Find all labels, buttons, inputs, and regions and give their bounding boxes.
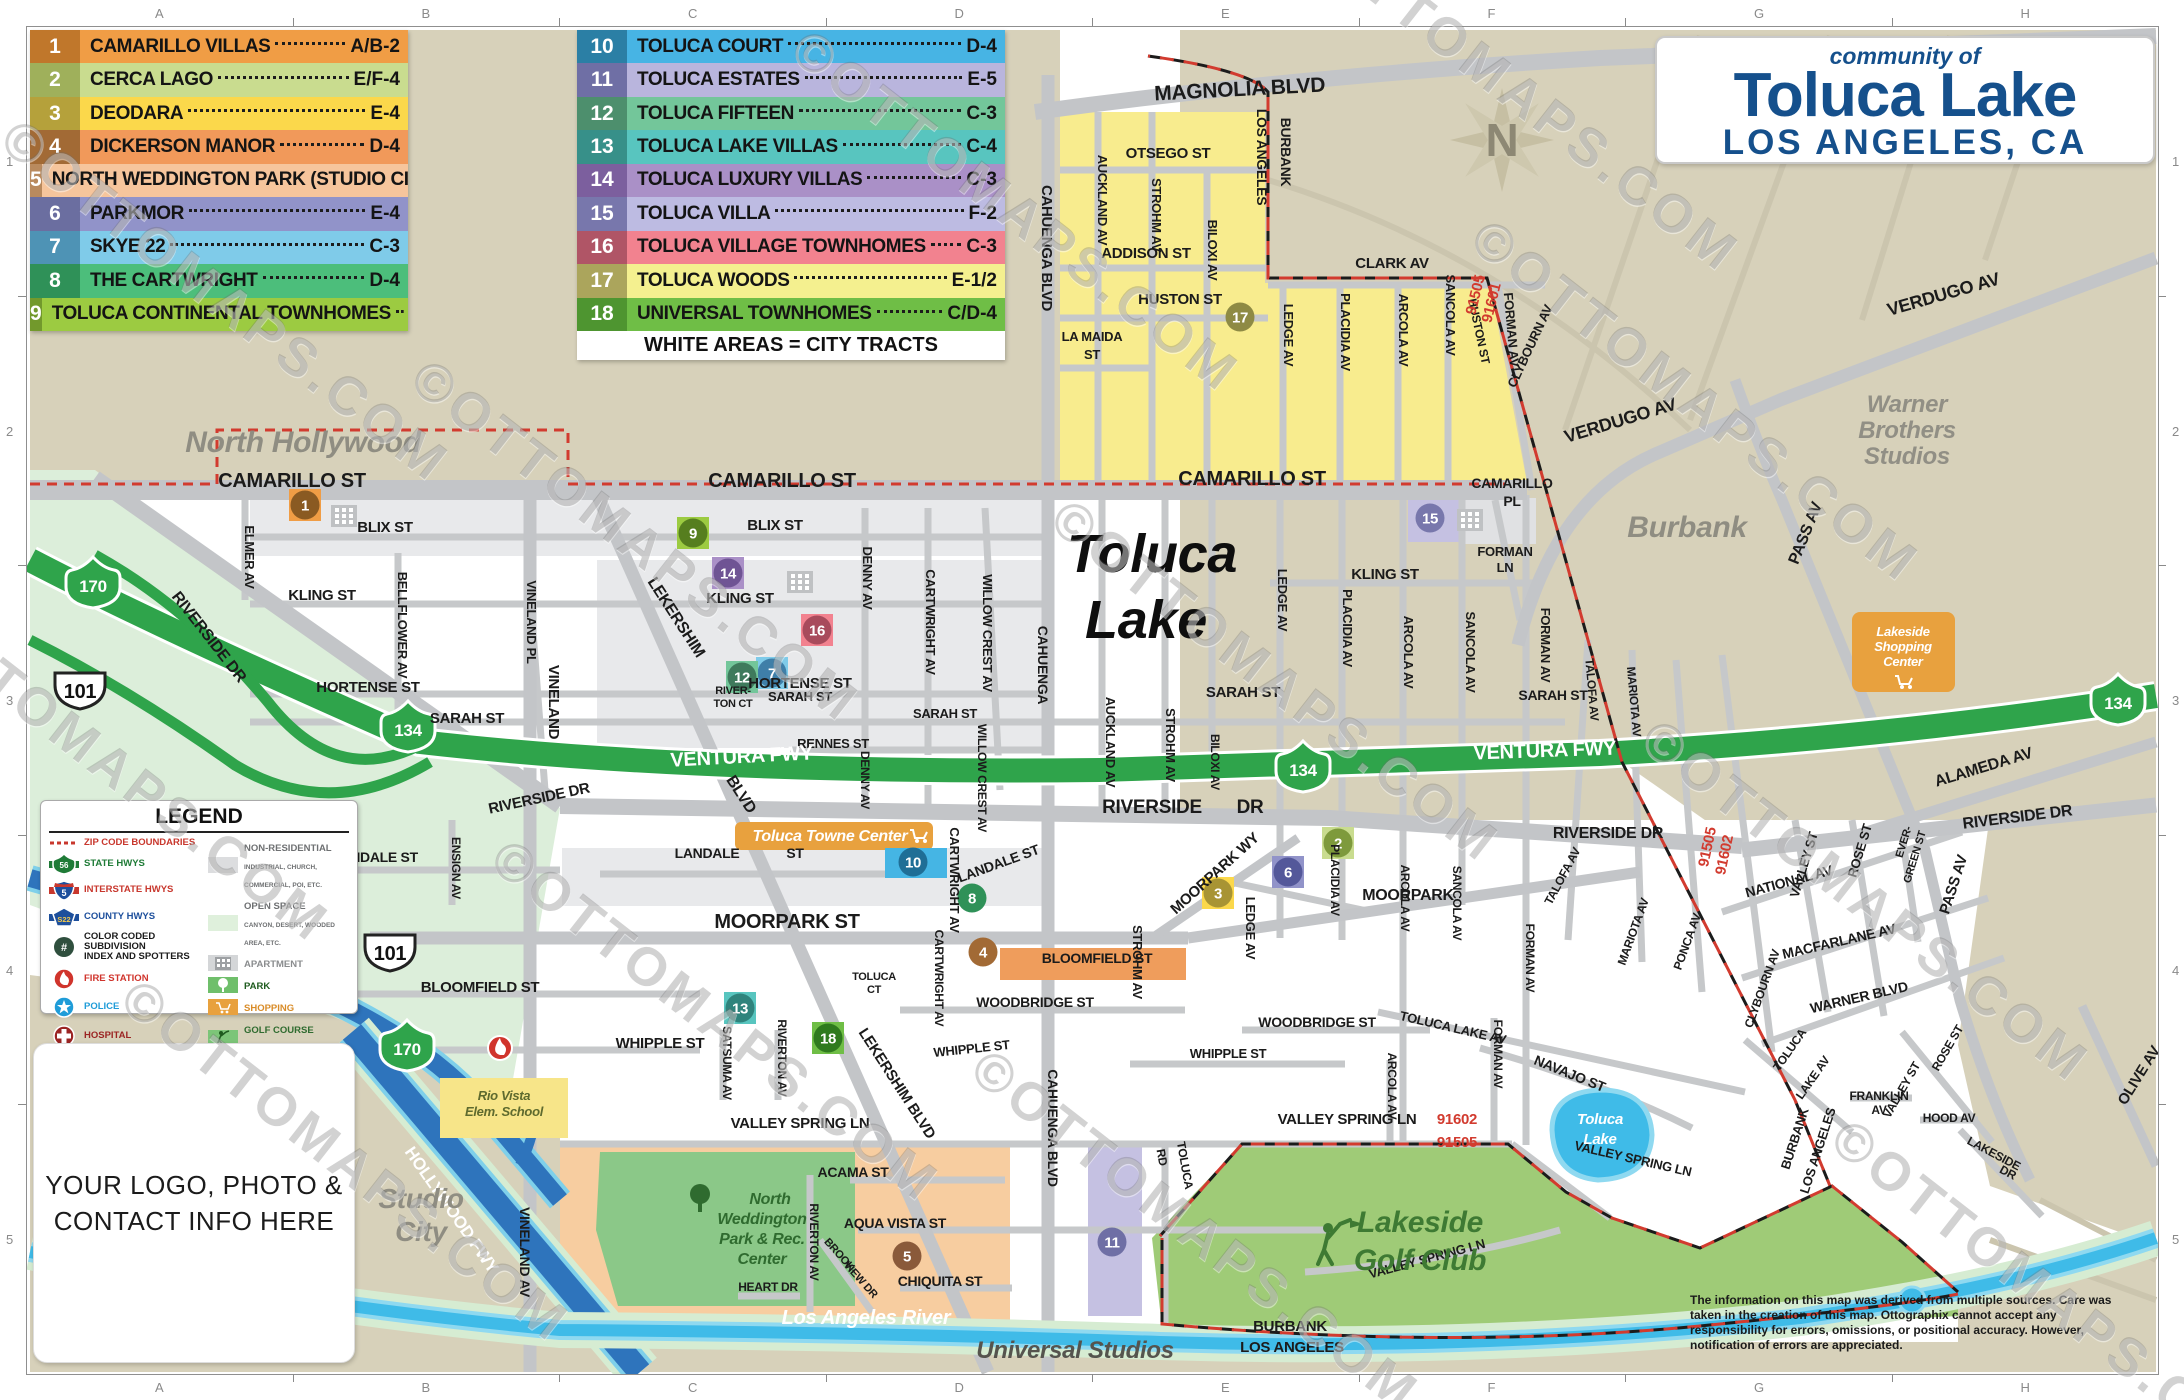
index-dot-leader bbox=[189, 209, 365, 212]
legend-item-label: INTERSTATE HWYS bbox=[84, 885, 173, 895]
subdivision-index-left: 1CAMARILLO VILLASA/B-22CERCA LAGOE/F-43D… bbox=[30, 30, 408, 331]
index-dot-leader bbox=[218, 76, 349, 79]
area-label: Lakeside bbox=[1357, 1206, 1483, 1239]
index-row-4: 4DICKERSON MANORD-4 bbox=[30, 130, 408, 163]
index-row-15: 15TOLUCA VILLAF-2 bbox=[577, 197, 1005, 230]
spotter-number: 3 bbox=[1214, 886, 1222, 903]
street-label: FORMAN AV bbox=[1538, 608, 1553, 683]
ruler-tick bbox=[1892, 18, 1893, 26]
index-subdivision-name: TOLUCA VILLA bbox=[627, 203, 770, 225]
street-label: ACAMA ST bbox=[818, 1164, 890, 1180]
street-label: FORMAN AV bbox=[1523, 924, 1537, 993]
ruler-letter-D: D bbox=[955, 1380, 964, 1395]
street-label: CARTWRIGHT AV bbox=[932, 930, 946, 1027]
area-label: Universal Studios bbox=[976, 1337, 1174, 1364]
street-label: PLACIDIA AV bbox=[1328, 844, 1342, 916]
ruler-letter-G: G bbox=[1754, 1380, 1764, 1395]
street-label: WOODBRIDGE ST bbox=[1258, 1014, 1376, 1030]
street-label: AUCKLAND AV bbox=[1103, 697, 1118, 788]
map-poster: N101101170170134134134123456789101112131… bbox=[0, 0, 2184, 1400]
ruler-tick bbox=[559, 1374, 560, 1382]
spotter-number: 16 bbox=[809, 623, 825, 640]
county-hwy-icon: S22 bbox=[49, 906, 79, 928]
ruler-number-1: 1 bbox=[6, 154, 13, 169]
index-grid-ref: A/B-2 bbox=[350, 36, 408, 58]
street-label: KLING ST bbox=[706, 590, 774, 607]
street-label: CAHUENGA BLVD bbox=[1045, 1069, 1061, 1187]
street-label: AQUA VISTA ST bbox=[844, 1215, 947, 1231]
index-number: 6 bbox=[30, 197, 80, 230]
shield-number: 134 bbox=[394, 721, 422, 740]
disclaimer-text: The information on this map was derived … bbox=[1690, 1293, 2126, 1353]
swatch-icon bbox=[208, 915, 238, 931]
ruler-tick bbox=[1359, 1374, 1360, 1382]
area-label: City bbox=[395, 1216, 448, 1247]
street-label: FORMAN bbox=[1477, 544, 1532, 559]
area-label: Studio bbox=[378, 1183, 463, 1214]
index-number: 12 bbox=[577, 97, 627, 130]
street-label: PLACIDIA AV bbox=[1340, 589, 1355, 667]
index-number: 18 bbox=[577, 298, 627, 331]
spotter-number: 18 bbox=[820, 1031, 836, 1048]
street-label: SANCOLA AV bbox=[1443, 274, 1458, 356]
index-grid-ref: C-3 bbox=[369, 236, 408, 258]
street-label: CHIQUITA ST bbox=[898, 1273, 983, 1289]
street-label: RIVERSIDE DR bbox=[1553, 825, 1664, 842]
index-dot-leader bbox=[280, 143, 364, 146]
index-dot-leader bbox=[170, 243, 364, 246]
legend-area-label: APARTMENT bbox=[244, 959, 303, 970]
legend-area-sub: CANYON, DESERT, WOODED AREA, ETC. bbox=[244, 922, 335, 947]
compass-n-label: N bbox=[1486, 114, 1519, 166]
legend-area-label: GOLF COURSE bbox=[244, 1025, 314, 1036]
index-grid-ref: D-4 bbox=[966, 36, 1005, 58]
street-label: MOORPARK ST bbox=[714, 911, 859, 933]
street-label: LN bbox=[1497, 560, 1514, 575]
street-label: LANDALE bbox=[675, 845, 740, 861]
street-label: PL bbox=[1503, 493, 1521, 509]
area-label: Shopping bbox=[1874, 639, 1932, 654]
index-row-14: 14TOLUCA LUXURY VILLASC-3 bbox=[577, 164, 1005, 197]
area-label: Toluca bbox=[1577, 1111, 1623, 1128]
ruler-letter-F: F bbox=[1488, 1380, 1496, 1395]
tree-icon bbox=[208, 977, 238, 993]
ruler-tick bbox=[293, 18, 294, 26]
index-number: 16 bbox=[577, 231, 627, 264]
index-subdivision-name: PARKMOR bbox=[80, 203, 184, 225]
street-label: SARAH ST bbox=[913, 706, 977, 721]
index-row-8: 8THE CARTWRIGHTD-4 bbox=[30, 264, 408, 297]
index-dot-leader bbox=[931, 243, 962, 246]
logo-line1: YOUR LOGO, PHOTO & bbox=[45, 1170, 342, 1200]
street-label: DR bbox=[1237, 797, 1264, 818]
index-grid-ref: E-4 bbox=[370, 103, 408, 125]
street-label: DENNY AV bbox=[860, 546, 875, 610]
street-label: CAMARILLO ST bbox=[1178, 468, 1326, 490]
street-label: ADDISON ST bbox=[1101, 245, 1191, 262]
index-number: 7 bbox=[30, 231, 80, 264]
index-row-9: 9TOLUCA CONTINENTAL TOWNHOMESC-2 bbox=[30, 298, 408, 331]
area-label: North Hollywood bbox=[185, 426, 421, 459]
street-label: SANCOLA AV bbox=[1450, 866, 1464, 941]
legend-item-police: POLICE bbox=[49, 995, 208, 1019]
index-grid-ref: D-4 bbox=[369, 270, 408, 292]
spotter-icon: # bbox=[49, 935, 79, 959]
spotter-number: 14 bbox=[720, 566, 737, 583]
index-number: 9 bbox=[30, 298, 42, 331]
legend-item-label: COLOR CODED SUBDIVISION INDEX AND SPOTTE… bbox=[84, 932, 208, 962]
spotter-number: 10 bbox=[905, 855, 921, 872]
apartment-icon bbox=[787, 571, 813, 593]
street-label: WILLOW CREST AV bbox=[975, 724, 989, 832]
street-label: CAHUENGA bbox=[1035, 626, 1051, 705]
street-label: ST bbox=[786, 845, 804, 861]
ruler-letter-A: A bbox=[155, 1380, 164, 1395]
swatch-icon bbox=[208, 857, 238, 873]
index-subdivision-name: TOLUCA COURT bbox=[627, 36, 783, 58]
legend-area-non-residential: NON-RESIDENTIALINDUSTRIAL, CHURCH, COMME… bbox=[208, 838, 349, 892]
logo-line2: CONTACT INFO HERE bbox=[54, 1206, 335, 1236]
spotter-number: 4 bbox=[979, 945, 988, 962]
area-label: Weddington bbox=[717, 1211, 807, 1228]
index-row-5: 5NORTH WEDDINGTON PARK (STUDIO CITY)D-5 bbox=[30, 164, 408, 197]
legend-box: LEGEND ZIP CODE BOUNDARIES56STATE HWYS5I… bbox=[40, 800, 358, 1014]
index-dot-leader bbox=[843, 143, 962, 146]
logo-placeholder-box: YOUR LOGO, PHOTO & CONTACT INFO HERE bbox=[33, 1043, 355, 1363]
index-row-16: 16TOLUCA VILLAGE TOWNHOMESC-3 bbox=[577, 231, 1005, 264]
street-label: RIVERTON AV bbox=[807, 1203, 821, 1280]
index-dot-leader bbox=[788, 42, 961, 45]
index-row-3: 3DEODARAE-4 bbox=[30, 97, 408, 130]
street-label: TOLUCA bbox=[852, 971, 896, 983]
area-label: Park & Rec. bbox=[719, 1231, 805, 1248]
street-label: HORTENSE ST bbox=[316, 679, 420, 696]
legend-area-label: SHOPPING bbox=[244, 1003, 294, 1014]
street-label: VINELAND AV bbox=[517, 1207, 533, 1298]
subdivision-index-right: 10TOLUCA COURTD-411TOLUCA ESTATESE-512TO… bbox=[577, 30, 1005, 360]
street-label: LA MAIDA bbox=[1062, 329, 1124, 344]
index-number: 14 bbox=[577, 164, 627, 197]
street-label: CLARK AV bbox=[1355, 255, 1429, 272]
index-subdivision-name: CERCA LAGO bbox=[80, 69, 213, 91]
index-subdivision-name: TOLUCA LAKE VILLAS bbox=[627, 136, 838, 158]
street-label: BLOOMFIELD ST bbox=[1042, 950, 1153, 966]
street-label: BILOXI AV bbox=[1205, 220, 1220, 281]
spotter-number: 6 bbox=[1284, 865, 1292, 882]
street-label: LEDGE AV bbox=[1243, 897, 1258, 960]
street-label: LEDGE AV bbox=[1275, 569, 1290, 632]
index-subdivision-name: TOLUCA FIFTEEN bbox=[627, 103, 794, 125]
ruler-number-5: 5 bbox=[2172, 1232, 2179, 1247]
legend-area-sub: INDUSTRIAL, CHURCH, COMMERCIAL, POI, ETC… bbox=[244, 864, 322, 889]
street-label: BLIX ST bbox=[357, 519, 413, 536]
area-label: Golf Club bbox=[1354, 1244, 1486, 1277]
ruler-tick bbox=[826, 1374, 827, 1382]
street-label: CAMARILLO ST bbox=[218, 470, 366, 492]
ruler-tick bbox=[1625, 1374, 1626, 1382]
ruler-tick bbox=[2158, 835, 2166, 836]
legend-item-zip: ZIP CODE BOUNDARIES bbox=[49, 838, 208, 848]
index-dot-leader bbox=[275, 42, 345, 45]
index-row-2: 2CERCA LAGOE/F-4 bbox=[30, 63, 408, 96]
index-grid-ref: C/D-4 bbox=[947, 303, 1005, 325]
index-subdivision-name: TOLUCA CONTINENTAL TOWNHOMES bbox=[42, 303, 391, 325]
street-label: ARCOLA AV bbox=[1396, 294, 1411, 367]
index-subdivision-name: DICKERSON MANOR bbox=[80, 136, 275, 158]
street-label: OTSEGO ST bbox=[1126, 145, 1211, 162]
ruler-tick bbox=[1892, 1374, 1893, 1382]
apartment-icon bbox=[1457, 509, 1483, 531]
ruler-letter-E: E bbox=[1221, 1380, 1230, 1395]
street-label: LEDGE AV bbox=[1281, 304, 1296, 367]
zip-code-label: 91602 bbox=[1437, 1111, 1477, 1128]
street-label: SARAH ST bbox=[1206, 684, 1280, 701]
street-label: STROHM AV bbox=[1163, 708, 1178, 782]
spotter-number: 11 bbox=[1104, 1235, 1119, 1252]
ruler-number-1: 1 bbox=[2172, 154, 2179, 169]
ruler-right bbox=[2158, 0, 2184, 1400]
index-grid-ref: F-2 bbox=[969, 203, 1006, 225]
svg-text:56: 56 bbox=[60, 861, 69, 870]
street-label: HEART DR bbox=[738, 1280, 798, 1294]
ruler-letter-H: H bbox=[2021, 1380, 2030, 1395]
index-dot-leader bbox=[775, 209, 963, 212]
spotter-number: 17 bbox=[1232, 310, 1248, 327]
ruler-number-5: 5 bbox=[6, 1232, 13, 1247]
index-grid-ref: D-4 bbox=[369, 136, 408, 158]
index-number: 1 bbox=[30, 30, 80, 63]
ruler-letter-C: C bbox=[688, 6, 697, 21]
area-label: Toluca bbox=[1067, 524, 1237, 584]
area-label: Lake bbox=[1584, 1131, 1617, 1148]
state-hwy-icon: 56 bbox=[49, 853, 79, 875]
index-dot-leader bbox=[188, 109, 365, 112]
ruler-tick bbox=[1359, 18, 1360, 26]
index-grid-ref: E-1/2 bbox=[952, 270, 1005, 292]
area-label: Warner bbox=[1867, 391, 1949, 418]
ruler-letter-A: A bbox=[155, 6, 164, 21]
fire-icon bbox=[49, 967, 79, 991]
ruler-letter-G: G bbox=[1754, 6, 1764, 21]
apartment-icon bbox=[331, 505, 357, 527]
index-grid-ref: C-3 bbox=[966, 236, 1005, 258]
ruler-tick bbox=[1092, 18, 1093, 26]
ruler-tick bbox=[2158, 1104, 2166, 1105]
ruler-number-3: 3 bbox=[2172, 693, 2179, 708]
index-number: 3 bbox=[30, 97, 80, 130]
index-subdivision-name: TOLUCA WOODS bbox=[627, 270, 789, 292]
index-grid-ref: C-3 bbox=[966, 169, 1005, 191]
legend-area-shopping: SHOPPING bbox=[208, 998, 349, 1016]
area-label: Elem. School bbox=[465, 1104, 544, 1119]
index-subdivision-name: UNIVERSAL TOWNHOMES bbox=[627, 303, 872, 325]
index-number: 4 bbox=[30, 130, 80, 163]
index-row-12: 12TOLUCA FIFTEENC-3 bbox=[577, 97, 1005, 130]
street-label: DENNY AV bbox=[858, 751, 872, 809]
spotter-number: 5 bbox=[903, 1249, 911, 1266]
legend-item-state-hwy: 56STATE HWYS bbox=[49, 853, 208, 875]
legend-item-label: POLICE bbox=[84, 1002, 119, 1012]
zip-icon bbox=[49, 838, 79, 848]
interstate-hwy-icon: 5 bbox=[49, 879, 79, 901]
shield-number: 101 bbox=[64, 681, 97, 703]
spotter-number: 8 bbox=[968, 891, 976, 908]
index-number: 5 bbox=[30, 164, 42, 197]
legend-item-fire: FIRE STATION bbox=[49, 967, 208, 991]
index-subdivision-name: THE CARTWRIGHT bbox=[80, 270, 258, 292]
legend-item-label: STATE HWYS bbox=[84, 859, 145, 869]
index-dot-leader bbox=[805, 76, 963, 79]
legend-item-label: COUNTY HWYS bbox=[84, 912, 155, 922]
index-row-17: 17TOLUCA WOODSE-1/2 bbox=[577, 264, 1005, 297]
shield-number: 170 bbox=[393, 1040, 420, 1059]
street-label: BILOXI AV bbox=[1208, 734, 1222, 790]
svg-text:5: 5 bbox=[61, 888, 66, 898]
legend-item-label: ZIP CODE BOUNDARIES bbox=[84, 838, 195, 848]
index-number: 2 bbox=[30, 63, 80, 96]
street-label: BELLFLOWER AV bbox=[395, 572, 410, 679]
spotter-number: 15 bbox=[1422, 511, 1438, 528]
index-number: 10 bbox=[577, 30, 627, 63]
title-subtitle: LOS ANGELES, CA bbox=[1657, 124, 2153, 162]
index-row-10: 10TOLUCA COURTD-4 bbox=[577, 30, 1005, 63]
area-label: Studios bbox=[1864, 443, 1950, 470]
street-label: CT bbox=[867, 984, 882, 996]
index-grid-ref: E/F-4 bbox=[354, 69, 408, 91]
area-label: Rio Vista bbox=[478, 1088, 531, 1103]
shield-number: 134 bbox=[2104, 694, 2132, 713]
legend-area-label: PARK bbox=[244, 981, 270, 992]
index-dot-leader bbox=[794, 276, 946, 279]
street-label: STROHM AV bbox=[1149, 178, 1164, 252]
legend-area-park: PARK bbox=[208, 976, 349, 994]
index-dot-leader bbox=[263, 276, 365, 279]
street-label: AUCKLAND AV bbox=[1095, 155, 1110, 246]
index-dot-leader bbox=[396, 310, 404, 313]
street-label: CARTWRIGHT AV bbox=[923, 569, 938, 675]
area-label: Center bbox=[738, 1251, 788, 1268]
svg-text:S22: S22 bbox=[57, 915, 70, 924]
index-grid-ref: E-4 bbox=[370, 203, 408, 225]
street-label: ELMER AV bbox=[242, 525, 257, 589]
street-label: RIVERSIDE bbox=[1102, 797, 1202, 818]
index-note: WHITE AREAS = CITY TRACTS bbox=[577, 331, 1005, 360]
street-label: ST bbox=[1084, 347, 1100, 362]
street-label: RIVERTON AV bbox=[775, 1019, 789, 1096]
area-label: Brothers bbox=[1858, 417, 1956, 444]
street-label: ENSIGN AV bbox=[449, 837, 463, 899]
spotter-number: 9 bbox=[689, 526, 697, 543]
street-label: CARTWRIGHT AV bbox=[947, 827, 962, 933]
area-label: Lakeside bbox=[1876, 624, 1929, 639]
ruler-tick bbox=[293, 1374, 294, 1382]
ruler-letter-B: B bbox=[422, 1380, 431, 1395]
index-row-18: 18UNIVERSAL TOWNHOMESC/D-4 bbox=[577, 298, 1005, 331]
street-label: SATSUMA AV bbox=[720, 1026, 734, 1100]
index-number: 17 bbox=[577, 264, 627, 297]
street-label: PLACIDIA AV bbox=[1338, 293, 1353, 371]
street-label: HOOD AV bbox=[1923, 1111, 1976, 1125]
ruler-tick bbox=[1625, 18, 1626, 26]
index-grid-ref: C-3 bbox=[966, 103, 1005, 125]
area-label: Burbank bbox=[1627, 511, 1748, 544]
ruler-tick bbox=[18, 565, 26, 566]
street-label: VINELAND bbox=[545, 665, 562, 740]
area-label: North bbox=[749, 1191, 791, 1208]
index-subdivision-name: TOLUCA ESTATES bbox=[627, 69, 800, 91]
street-label: BLIX ST bbox=[747, 517, 803, 534]
area-label: Center bbox=[1883, 654, 1924, 669]
index-dot-leader bbox=[877, 310, 943, 313]
street-label: VALLEY SPRING LN bbox=[731, 1115, 870, 1132]
index-grid-ref: C-4 bbox=[966, 136, 1005, 158]
legend-item-county-hwy: S22COUNTY HWYS bbox=[49, 906, 208, 928]
street-label: KLING ST bbox=[1351, 566, 1419, 583]
street-label: SARAH ST bbox=[430, 710, 504, 727]
index-dot-leader bbox=[799, 109, 961, 112]
ruler-letter-D: D bbox=[955, 6, 964, 21]
ruler-tick bbox=[826, 18, 827, 26]
index-subdivision-name: DEODARA bbox=[80, 103, 183, 125]
index-row-13: 13TOLUCA LAKE VILLASC-4 bbox=[577, 130, 1005, 163]
street-label: HUSTON ST bbox=[1138, 291, 1222, 308]
street-label: FORMAN AV bbox=[1491, 1020, 1505, 1089]
street-label: CAMARILLO bbox=[1471, 475, 1553, 491]
ruler-letter-H: H bbox=[2021, 6, 2030, 21]
legend-item-spotter: #COLOR CODED SUBDIVISION INDEX AND SPOTT… bbox=[49, 932, 208, 962]
street-label: BURBANK bbox=[1253, 1318, 1327, 1335]
legend-area-label: NON-RESIDENTIAL bbox=[244, 843, 332, 854]
ruler-number-2: 2 bbox=[6, 424, 13, 439]
index-number: 13 bbox=[577, 130, 627, 163]
street-label: WOODBRIDGE ST bbox=[976, 994, 1094, 1010]
legend-title: LEGEND bbox=[49, 805, 349, 833]
ruler-letter-F: F bbox=[1488, 6, 1496, 21]
street-label: LOS ANGELES bbox=[1240, 1339, 1344, 1356]
page-title: Toluca Lake bbox=[1657, 68, 2153, 124]
logo-placeholder-text: YOUR LOGO, PHOTO & CONTACT INFO HERE bbox=[45, 1167, 342, 1239]
ruler-tick bbox=[1092, 1374, 1093, 1382]
street-label: ARCOLA AV bbox=[1398, 865, 1412, 932]
index-row-1: 1CAMARILLO VILLASA/B-2 bbox=[30, 30, 408, 63]
street-label: WILLOW CREST AV bbox=[980, 574, 995, 692]
spotter-number: 13 bbox=[732, 1001, 748, 1018]
legend-area-label: OPEN SPACE bbox=[244, 901, 306, 912]
index-subdivision-name: TOLUCA LUXURY VILLAS bbox=[627, 169, 862, 191]
legend-item-label: FIRE STATION bbox=[84, 974, 149, 984]
ruler-tick bbox=[559, 18, 560, 26]
street-label: BLOOMFIELD ST bbox=[421, 979, 540, 996]
street-label: RIVER- bbox=[715, 685, 751, 697]
shield-number: 101 bbox=[374, 943, 407, 965]
cart-icon bbox=[208, 999, 238, 1015]
ruler-letter-C: C bbox=[688, 1380, 697, 1395]
street-label: KLING ST bbox=[288, 587, 356, 604]
ruler-tick bbox=[18, 1104, 26, 1105]
index-number: 15 bbox=[577, 197, 627, 230]
ruler-number-3: 3 bbox=[6, 693, 13, 708]
ruler-letter-E: E bbox=[1221, 6, 1230, 21]
legend-area-apartment: APARTMENT bbox=[208, 954, 349, 972]
shield-number: 170 bbox=[79, 577, 106, 596]
building-icon bbox=[208, 955, 238, 971]
fire-station-icon bbox=[488, 1036, 512, 1060]
index-row-7: 7SKYE 22C-3 bbox=[30, 231, 408, 264]
index-row-11: 11TOLUCA ESTATESE-5 bbox=[577, 63, 1005, 96]
index-number: 11 bbox=[577, 63, 627, 96]
index-grid-ref: E-5 bbox=[967, 69, 1005, 91]
legend-area-open-space: OPEN SPACECANYON, DESERT, WOODED AREA, E… bbox=[208, 896, 349, 950]
